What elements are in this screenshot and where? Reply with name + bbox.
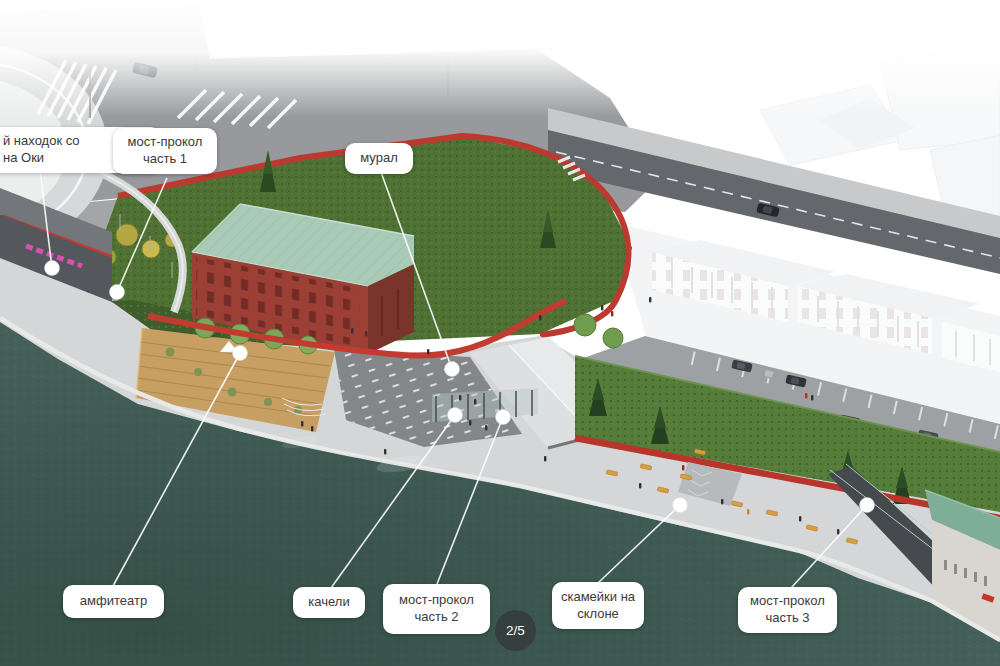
callout-label: скамейки на склоне (561, 589, 635, 623)
callout-label: мост-прокол часть 1 (128, 134, 203, 168)
page-indicator: 2/5 (495, 610, 536, 651)
callout-label: амфитеатр (80, 593, 147, 610)
masterplan-slide: й находок со на Оки мост-прокол часть 1 … (0, 0, 1000, 666)
callout-swings: качели (293, 587, 365, 618)
page-indicator-text: 2/5 (506, 623, 525, 638)
callout-bridge-part-3: мост-прокол часть 3 (738, 587, 837, 633)
callout-label: мурал (360, 150, 397, 167)
callout-bridge-part-2: мост-прокол часть 2 (383, 584, 490, 634)
callout-benches-on-slope: скамейки на склоне (552, 582, 644, 629)
site-plan-rendering (0, 0, 1000, 666)
callout-amphitheater: амфитеатр (63, 585, 164, 618)
callout-label: качели (308, 594, 349, 611)
callout-label: мост-прокол часть 2 (399, 592, 474, 626)
callout-label: й находок со на Оки (3, 133, 80, 167)
callout-label: мост-прокол часть 3 (750, 593, 825, 627)
callout-bridge-part-1: мост-прокол часть 1 (113, 128, 217, 174)
callout-mural: мурал (345, 143, 413, 174)
